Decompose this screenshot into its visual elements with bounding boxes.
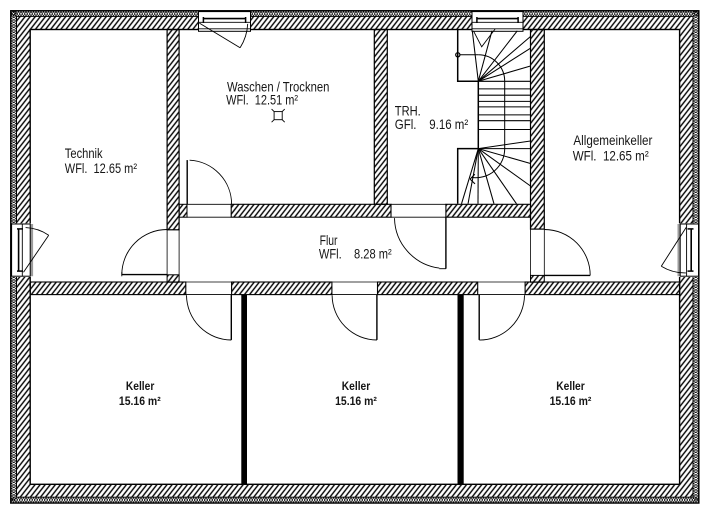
svg-text:15.16 m²: 15.16 m² (119, 395, 161, 408)
svg-text:Technik: Technik (65, 145, 104, 161)
svg-text:15.16 m²: 15.16 m² (550, 395, 592, 408)
svg-text:WFl. 12.51 m²: WFl. 12.51 m² (226, 92, 298, 108)
svg-text:Keller: Keller (126, 380, 155, 393)
svg-text:WFl. 12.65 m²: WFl. 12.65 m² (573, 148, 649, 164)
svg-text:15.16 m²: 15.16 m² (335, 395, 377, 408)
svg-text:WFl. 12.65 m²: WFl. 12.65 m² (65, 160, 137, 176)
svg-text:Keller: Keller (342, 380, 371, 393)
svg-text:Allgemeinkeller: Allgemeinkeller (573, 132, 652, 148)
svg-text:GFl. 9.16 m²: GFl. 9.16 m² (395, 116, 469, 132)
svg-text:Keller: Keller (556, 380, 585, 393)
svg-text:WFl. 8.28 m²: WFl. 8.28 m² (319, 246, 392, 262)
